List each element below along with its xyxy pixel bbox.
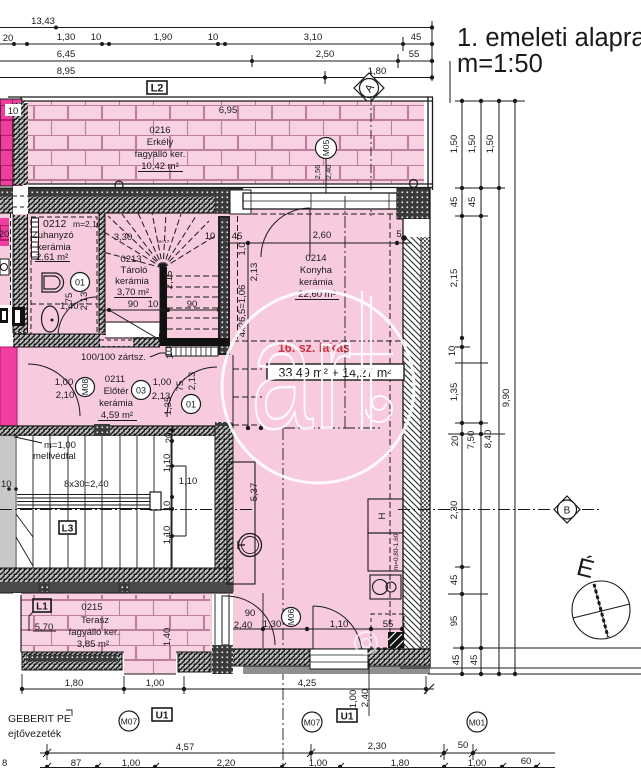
svg-text:8,95: 8,95 [57, 66, 76, 77]
svg-text:H: H [377, 512, 388, 519]
svg-text:1,50: 1,50 [449, 135, 460, 154]
svg-text:2,15: 2,15 [449, 269, 460, 288]
svg-text:01: 01 [186, 400, 196, 410]
svg-text:20: 20 [164, 433, 175, 444]
svg-text:0216: 0216 [149, 125, 170, 136]
svg-text:10: 10 [164, 347, 175, 358]
svg-text:4,59 m²: 4,59 m² [101, 410, 133, 421]
svg-text:10: 10 [8, 106, 19, 117]
svg-text:45: 45 [449, 197, 460, 208]
svg-text:L3: L3 [62, 524, 74, 535]
svg-text:45: 45 [411, 32, 422, 43]
svg-text:95: 95 [449, 616, 460, 627]
svg-text:1,35: 1,35 [449, 383, 460, 402]
svg-text:6,95: 6,95 [219, 105, 238, 116]
svg-text:1,00: 1,00 [468, 758, 487, 768]
svg-text:3,85 m²: 3,85 m² [77, 639, 109, 650]
svg-text:kerámia: kerámia [115, 276, 150, 287]
svg-text:45: 45 [469, 655, 480, 666]
svg-text:1,00: 1,00 [153, 377, 172, 388]
svg-text:3,30: 3,30 [114, 232, 133, 243]
svg-text:2,50: 2,50 [316, 49, 335, 60]
svg-text:1,00: 1,00 [122, 758, 141, 768]
svg-text:M07: M07 [304, 718, 321, 728]
svg-text:01: 01 [75, 278, 85, 288]
svg-text:1,00: 1,00 [146, 678, 165, 689]
svg-text:m=1:50: m=1:50 [457, 50, 543, 78]
svg-text:1,10: 1,10 [330, 619, 349, 630]
svg-text:8x30=2,40: 8x30=2,40 [64, 479, 109, 490]
svg-text:2,56: 2,56 [313, 165, 322, 180]
svg-text:Tároló: Tároló [121, 265, 148, 276]
svg-text:1,90: 1,90 [154, 32, 173, 43]
svg-text:4,25: 4,25 [298, 678, 317, 689]
svg-text:10: 10 [205, 231, 216, 242]
svg-text:10,42 m²: 10,42 m² [141, 161, 179, 172]
svg-text:0212: 0212 [43, 218, 67, 230]
svg-text:2,30: 2,30 [368, 741, 387, 752]
svg-text:2,60: 2,60 [313, 230, 332, 241]
svg-text:2,20: 2,20 [217, 758, 236, 768]
svg-text:55: 55 [409, 49, 420, 60]
svg-text:8: 8 [2, 758, 7, 768]
svg-text:6,45: 6,45 [57, 49, 76, 60]
svg-text:M05: M05 [321, 139, 331, 156]
svg-text:U1: U1 [341, 712, 354, 723]
svg-text:45: 45 [449, 575, 460, 586]
svg-text:7,50: 7,50 [466, 431, 477, 450]
svg-text:75: 75 [64, 293, 75, 304]
svg-text:90: 90 [128, 299, 139, 310]
svg-text:10: 10 [148, 299, 159, 310]
svg-text:Terasz: Terasz [81, 615, 109, 626]
svg-text:1,80: 1,80 [391, 758, 410, 768]
svg-text:fagyálló ker.: fagyálló ker. [69, 627, 120, 638]
svg-text:1. emeleti alaprajz: 1. emeleti alaprajz [457, 24, 641, 52]
svg-text:1,10: 1,10 [162, 454, 173, 473]
svg-text:m=2,10: m=2,10 [73, 219, 102, 229]
svg-text:B: B [564, 506, 571, 517]
svg-text:L2: L2 [151, 83, 164, 95]
svg-text:2,10: 2,10 [56, 390, 75, 401]
svg-text:45: 45 [451, 655, 462, 666]
svg-text:2,13: 2,13 [249, 263, 260, 282]
svg-text:2,13: 2,13 [79, 292, 90, 311]
svg-text:10: 10 [91, 32, 102, 43]
svg-text:100/100 zártsz.: 100/100 zártsz. [81, 352, 146, 363]
svg-text:M06: M06 [286, 608, 296, 625]
svg-text:2,13: 2,13 [187, 372, 198, 391]
svg-text:Konyha: Konyha [300, 265, 333, 276]
svg-text:Előtér: Előtér [104, 386, 129, 397]
svg-text:M08: M08 [80, 378, 90, 395]
svg-text:2,40: 2,40 [324, 165, 333, 180]
svg-text:0211: 0211 [105, 374, 125, 385]
svg-text:20: 20 [450, 436, 461, 447]
svg-text:55: 55 [383, 619, 394, 630]
svg-text:ejtővezeték: ejtővezeték [8, 728, 62, 740]
svg-text:fagyálló ker.: fagyálló ker. [135, 149, 186, 160]
svg-text:3,10: 3,10 [304, 32, 323, 43]
svg-text:45: 45 [467, 197, 478, 208]
svg-text:13,43: 13,43 [31, 16, 55, 27]
svg-text:M07: M07 [121, 717, 138, 727]
svg-text:L1: L1 [36, 602, 48, 613]
svg-text:ar: ar [251, 286, 353, 461]
svg-text:0213: 0213 [120, 254, 141, 265]
svg-text:2,30: 2,30 [449, 501, 460, 520]
svg-text:9,90: 9,90 [501, 389, 512, 408]
svg-text:1,00: 1,00 [348, 690, 359, 709]
svg-text:Zuhanyzó: Zuhanyzó [32, 230, 74, 241]
svg-text:1,80: 1,80 [65, 678, 84, 689]
svg-text:Erkély: Erkély [147, 137, 174, 148]
svg-text:10: 10 [208, 32, 219, 43]
svg-text:U1: U1 [156, 711, 169, 722]
svg-text:90: 90 [245, 608, 256, 619]
svg-text:2,61 m²: 2,61 m² [36, 252, 68, 263]
svg-text:03: 03 [136, 386, 146, 396]
svg-text:1,30: 1,30 [57, 32, 76, 43]
svg-text:0214: 0214 [305, 253, 326, 264]
svg-text:mellvédfal: mellvédfal [33, 451, 76, 462]
svg-text:3,70 m²: 3,70 m² [117, 287, 149, 298]
svg-text:1,10: 1,10 [179, 476, 198, 487]
svg-text:0215: 0215 [81, 602, 102, 613]
svg-text:m=0,80-1,60: m=0,80-1,60 [393, 533, 400, 570]
svg-text:2,40: 2,40 [234, 620, 253, 631]
svg-text:20: 20 [0, 229, 9, 240]
svg-text:5,37: 5,37 [249, 483, 260, 502]
svg-text:16+17: 16+17 [157, 239, 170, 244]
svg-text:1,00: 1,00 [309, 758, 328, 768]
svg-text:1,50: 1,50 [467, 135, 478, 154]
svg-text:2,40: 2,40 [360, 689, 371, 708]
svg-text:1,10: 1,10 [162, 526, 173, 545]
svg-text:8,40: 8,40 [483, 430, 494, 449]
svg-text:87: 87 [71, 758, 82, 768]
svg-text:5: 5 [396, 229, 401, 240]
svg-text:M01: M01 [469, 718, 486, 728]
svg-text:2,15: 2,15 [164, 271, 175, 290]
svg-text:60: 60 [521, 756, 532, 767]
svg-text:m=1,00: m=1,00 [44, 440, 76, 451]
svg-text:kerámia: kerámia [99, 398, 134, 409]
svg-text:1,40: 1,40 [162, 628, 173, 647]
svg-text:50: 50 [458, 740, 469, 751]
svg-text:20: 20 [3, 33, 14, 44]
svg-text:10: 10 [447, 346, 458, 357]
svg-text:GEBERIT PE: GEBERIT PE [8, 713, 71, 725]
svg-text:90: 90 [187, 299, 198, 310]
svg-text:4,57: 4,57 [176, 742, 195, 753]
svg-text:1,50: 1,50 [485, 135, 496, 154]
